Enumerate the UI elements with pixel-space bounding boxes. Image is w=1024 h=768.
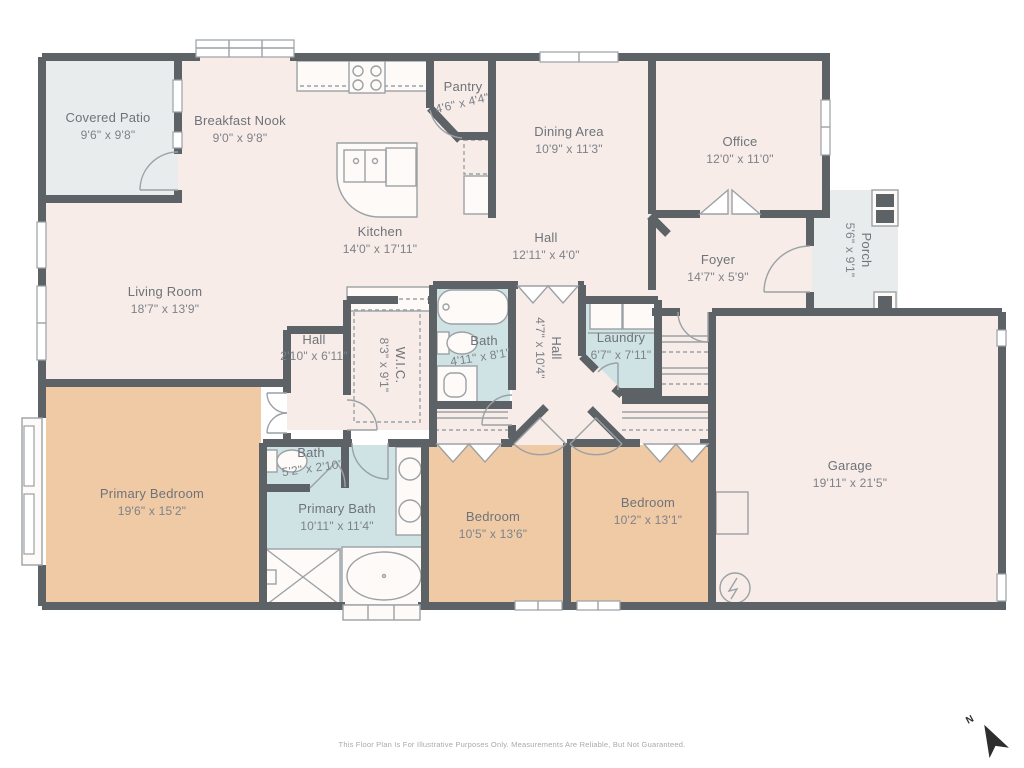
small-bath-label: Bath bbox=[297, 445, 325, 460]
hall-dims: 12'11" x 4'0" bbox=[512, 248, 580, 262]
living-window-1 bbox=[37, 222, 46, 268]
bedroom2-dims: 10'2" x 13'1" bbox=[614, 513, 682, 527]
bedroom1-dims: 10'5" x 13'6" bbox=[459, 527, 527, 541]
fridge bbox=[464, 176, 490, 214]
wic-dims: 8'3" x 9'1" bbox=[377, 338, 391, 393]
primary-bedroom-dims: 19'6" x 15'2" bbox=[118, 504, 186, 518]
primary-window-1 bbox=[24, 426, 34, 486]
disclaimer-text: This Floor Plan Is For Illustrative Purp… bbox=[339, 740, 686, 749]
garage-window-2 bbox=[997, 574, 1006, 601]
breakfast-nook-label: Breakfast Nook bbox=[194, 113, 286, 128]
hall-label: Hall bbox=[534, 230, 557, 245]
soaking-tub-deck bbox=[342, 547, 426, 605]
dining-area-dims: 10'9" x 11'3" bbox=[535, 142, 603, 156]
patio-window-2 bbox=[173, 132, 182, 148]
washer bbox=[590, 303, 622, 329]
covered-patio-label: Covered Patio bbox=[66, 110, 151, 125]
floor-fills bbox=[42, 57, 1002, 607]
covered-patio-dims: 9'6" x 9'8" bbox=[81, 128, 136, 142]
laundry-dims: 6'7" x 7'11" bbox=[591, 348, 652, 362]
bedroom2-label: Bedroom bbox=[621, 495, 675, 510]
bedroom1-label: Bedroom bbox=[466, 509, 520, 524]
primary-bath-label: Primary Bath bbox=[298, 501, 376, 516]
primary-window-2 bbox=[24, 494, 34, 554]
bedroom1-floor bbox=[427, 445, 565, 605]
hall2-dims: 2'10" x 6'11" bbox=[280, 349, 348, 363]
primary-bath-dims: 10'11" x 11'4" bbox=[300, 519, 374, 533]
laundry-label: Laundry bbox=[597, 330, 646, 345]
office-dims: 12'0" x 11'0" bbox=[706, 152, 774, 166]
north-label: N bbox=[964, 714, 976, 727]
foyer-dims: 14'7" x 5'9" bbox=[687, 270, 749, 284]
porch-label: Porch bbox=[859, 233, 874, 268]
breakfast-nook-dims: 9'0" x 9'8" bbox=[213, 131, 268, 145]
wic-label: W.I.C. bbox=[393, 347, 408, 384]
kitchen-dims: 14'0" x 17'11" bbox=[343, 242, 417, 256]
toilet2-tank bbox=[266, 450, 277, 472]
bath-vanity bbox=[437, 366, 477, 404]
living-room-label: Living Room bbox=[128, 284, 202, 299]
floor-plan-drawing: Covered Patio 9'6" x 9'8" Breakfast Nook… bbox=[0, 0, 1024, 768]
north-arrow: N bbox=[964, 714, 1009, 759]
floor-plan-page: Covered Patio 9'6" x 9'8" Breakfast Nook… bbox=[0, 0, 1024, 768]
hall2-label: Hall bbox=[302, 332, 325, 347]
garage-window-1 bbox=[997, 330, 1006, 346]
hall3-label: Hall bbox=[549, 336, 564, 359]
primary-bath-bay-window bbox=[343, 605, 420, 620]
kitchen-label: Kitchen bbox=[358, 224, 403, 239]
bath-label: Bath bbox=[470, 333, 498, 348]
dryer bbox=[623, 303, 655, 329]
office-label: Office bbox=[723, 134, 758, 149]
primary-bedroom-label: Primary Bedroom bbox=[100, 486, 204, 501]
patio-window-1 bbox=[173, 80, 182, 112]
foyer-closet-floor bbox=[658, 300, 712, 443]
living-room-dims: 18'7" x 13'9" bbox=[131, 302, 199, 316]
garage-label: Garage bbox=[828, 458, 873, 473]
closet1-floor bbox=[430, 405, 512, 443]
foyer-label: Foyer bbox=[701, 252, 736, 267]
dining-area-label: Dining Area bbox=[534, 124, 604, 139]
primary-bedroom-doors bbox=[267, 393, 287, 433]
porch-dims: 5'6" x 9'1" bbox=[843, 223, 857, 278]
north-arrow-icon bbox=[974, 720, 1008, 759]
hall3-dims: 4'7" x 10'4" bbox=[533, 317, 547, 379]
garage-dims: 19'11" x 21'5" bbox=[813, 476, 887, 490]
